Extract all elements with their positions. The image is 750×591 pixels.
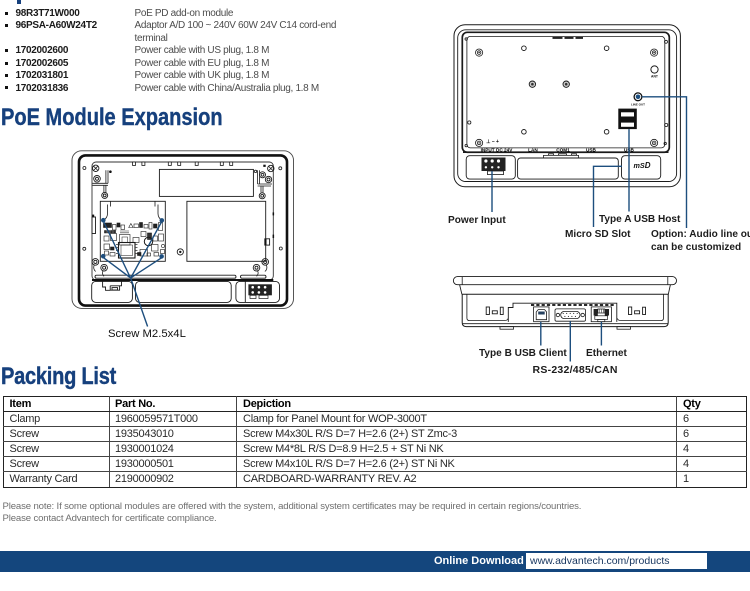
svg-text:LINE OUT: LINE OUT [631,103,645,107]
svg-text:ANT: ANT [651,75,659,79]
svg-text:mSD: mSD [634,161,651,170]
svg-text:USB: USB [586,148,597,153]
svg-text:COM1: COM1 [556,148,570,153]
svg-text:INPUT DC 24V: INPUT DC 24V [481,148,514,153]
svg-text:LAN: LAN [528,148,538,153]
svg-text:⊥ – +: ⊥ – + [486,139,499,145]
